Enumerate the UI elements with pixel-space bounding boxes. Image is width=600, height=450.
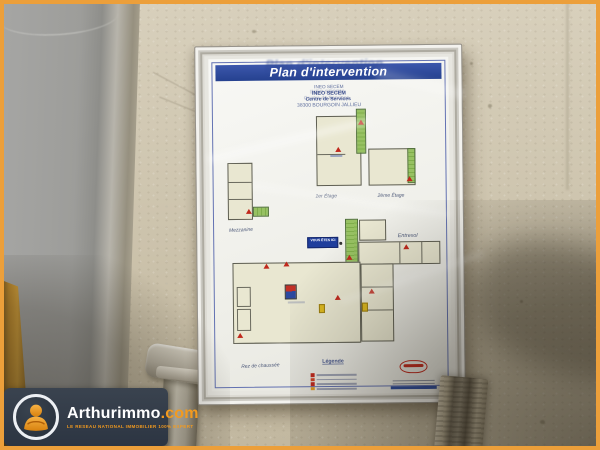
- photo-wall-intervention-plan: Plan d'intervention INEO SECEM INEO SECE…: [0, 0, 600, 450]
- watermark-badge: Arthurimmo.com LE RESEAU NATIONAL IMMOBI…: [4, 388, 168, 446]
- extinguisher-marker: [263, 264, 269, 269]
- extinguisher-marker: [283, 261, 289, 266]
- brand-text-block: Arthurimmo.com LE RESEAU NATIONAL IMMOBI…: [67, 405, 320, 430]
- first-floor-stairs: [356, 109, 366, 154]
- shelving-outline: [237, 309, 251, 331]
- brand-name: Arthurimmo.com: [67, 405, 320, 422]
- mezzanine-stairs: [253, 207, 269, 217]
- ground-floor-label: Rez de chaussée: [225, 357, 285, 376]
- extinguisher-marker: [237, 333, 243, 338]
- shelving-outline: [237, 287, 251, 307]
- address-block: INEO SECEM INEO SECEM Centre de Services…: [209, 83, 449, 110]
- shadow-bottom-right: [290, 200, 600, 450]
- extinguisher-marker: [246, 209, 252, 214]
- extinguisher-marker: [407, 176, 413, 181]
- plan-title-banner: Plan d'intervention: [215, 63, 441, 81]
- mezzanine-label: Mezzanine: [212, 222, 270, 241]
- extinguisher-marker: [335, 147, 341, 152]
- mascot-svg: [19, 400, 53, 434]
- brand-main: Arthurimmo: [67, 405, 161, 422]
- person-mascot-icon: [13, 394, 59, 440]
- first-floor-note: [330, 155, 342, 157]
- extinguisher-marker: [358, 120, 364, 125]
- plan-title: Plan d'intervention: [270, 64, 388, 79]
- brand-suffix: .com: [161, 405, 199, 422]
- brand-tagline: LE RESEAU NATIONAL IMMOBILIER 100% EXPER…: [67, 424, 320, 430]
